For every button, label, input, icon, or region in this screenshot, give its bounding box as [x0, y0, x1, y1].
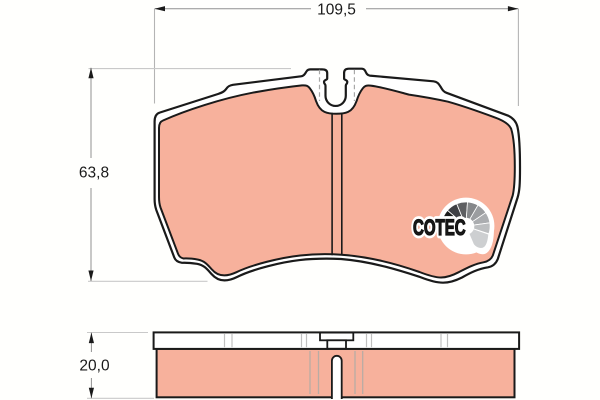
svg-text:63,8: 63,8	[79, 165, 109, 182]
svg-text:109,5: 109,5	[317, 2, 356, 19]
svg-text:COTEC: COTEC	[413, 215, 466, 240]
svg-text:20,0: 20,0	[79, 358, 110, 375]
